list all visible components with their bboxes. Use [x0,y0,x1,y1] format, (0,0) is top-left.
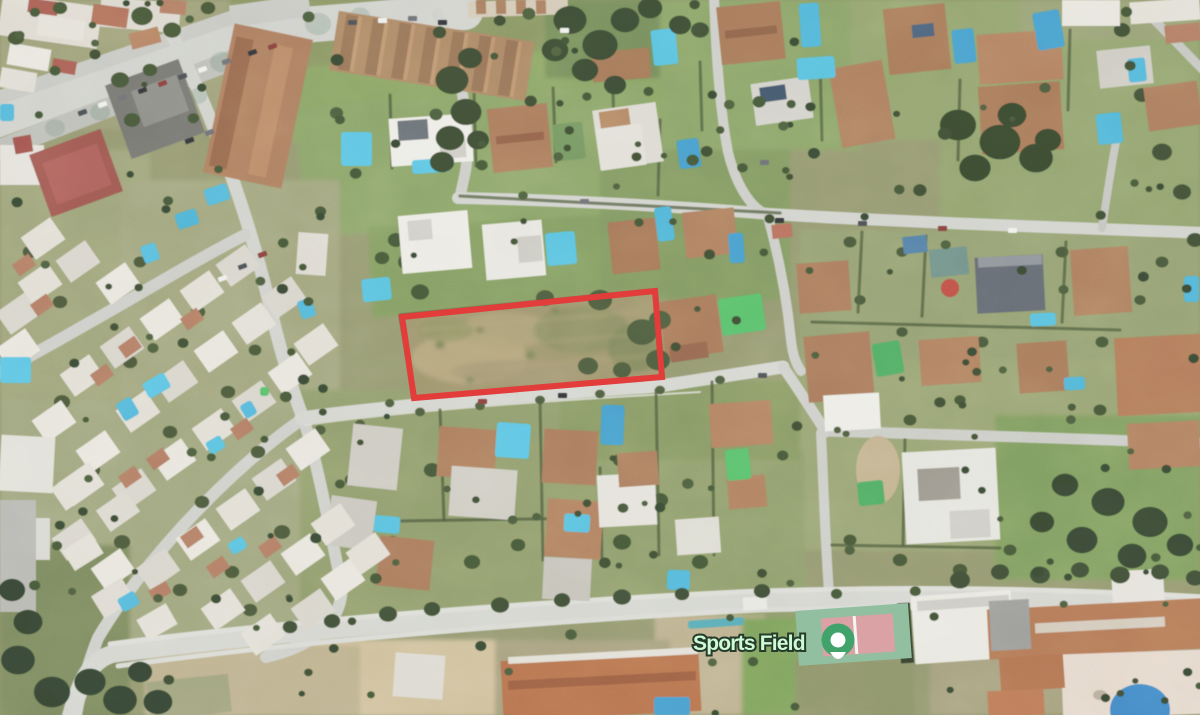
svg-text:Sports Field: Sports Field [693,632,805,655]
